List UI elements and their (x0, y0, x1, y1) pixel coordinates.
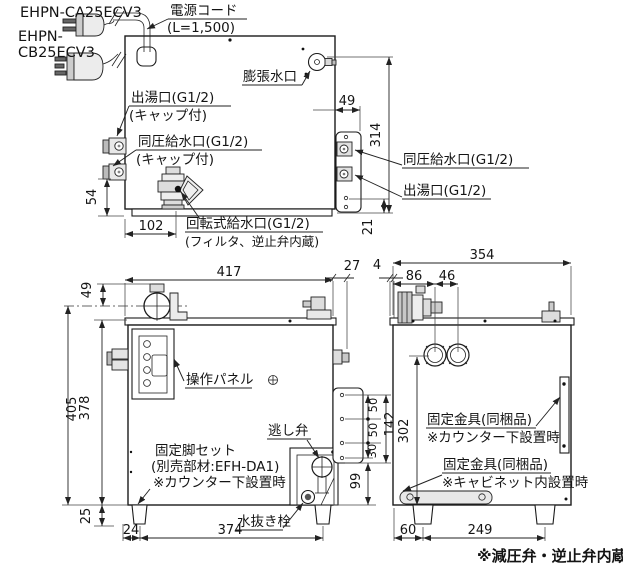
screw-dot (130, 451, 132, 453)
rear-outlet-port (337, 167, 352, 181)
label-control-panel: 操作パネル (186, 372, 254, 388)
label-bracket-counter-line2: ※カウンター下設置時 (427, 430, 560, 446)
front-foot-right (315, 505, 331, 524)
drain-plug (302, 491, 315, 504)
bracket-counter (560, 377, 569, 453)
label-fixing-leg-line3: ※カウンター下設置時 (153, 475, 286, 491)
dim-24: 24 (123, 523, 140, 538)
label-bracket-counter-line1: 固定金具(同梱品) (427, 412, 532, 428)
label-rear-outlet: 出湯口(G1/2) (403, 182, 486, 199)
rear-connection-plate (336, 132, 361, 212)
label-rear-ep-inlet: 同圧給水口(G1/2) (403, 152, 513, 168)
label-relief-valve: 逃し弁 (268, 423, 309, 439)
label-rotary-inlet: 回転式給水口(G1/2) (186, 216, 310, 232)
model-name-a: EHPN-CA25ECV3 (20, 5, 142, 21)
dim-50b: 50 (366, 423, 380, 438)
relief-valve-compartment (290, 448, 338, 505)
dim-302: 302 (397, 419, 412, 444)
side-foot-right (535, 505, 555, 524)
bracket-cabinet (400, 491, 492, 504)
screw-dot (130, 471, 132, 473)
dim-25: 25 (79, 508, 94, 525)
screw-dot (228, 38, 231, 41)
drawing-svg: 49 314 21 54 102 EHPN-CA25ECV3 EHPN- CB2… (0, 0, 623, 570)
dim-378: 378 (78, 396, 93, 421)
label-power-cord-length: (L=1,500) (167, 20, 235, 36)
dim-49-top: 49 (339, 94, 356, 109)
label-fixing-leg-line1: 固定脚セット (155, 443, 236, 459)
unit-top-front-strip (132, 209, 332, 216)
dim-54: 54 (85, 189, 100, 206)
dim-46: 46 (439, 269, 456, 284)
outlet-port-top (103, 138, 126, 154)
label-ep-inlet-cap: (キャップ付) (136, 152, 214, 168)
equal-pressure-port-top (103, 164, 126, 180)
dim-86: 86 (406, 269, 423, 284)
dim-417: 417 (217, 265, 242, 280)
model-name-b-line1: EHPN- (18, 29, 63, 45)
dim-50a: 50 (366, 398, 380, 413)
footnote-valves-builtin: ※減圧弁・逆止弁内蔵 (477, 547, 623, 565)
label-outlet-cap: (キャップ付) (129, 108, 207, 124)
screw-dot (302, 48, 305, 51)
screw-dot (565, 498, 568, 501)
technical-drawing-page: 49 314 21 54 102 EHPN-CA25ECV3 EHPN- CB2… (0, 0, 623, 570)
dim-99: 99 (349, 473, 364, 490)
label-expansion-port: 膨張水口 (243, 69, 297, 85)
dim-49-front: 49 (80, 282, 95, 299)
screw-dot (305, 73, 308, 76)
dim-27: 27 (344, 259, 361, 274)
model-name-b-line2: CB25ECV3 (18, 45, 95, 61)
label-power-cord: 電源コード (170, 3, 238, 19)
dim-354: 354 (470, 248, 495, 263)
dim-314: 314 (369, 123, 384, 148)
dim-249: 249 (468, 523, 493, 538)
control-panel (132, 329, 174, 399)
face-screw (269, 376, 278, 385)
dim-30: 30 (365, 444, 379, 459)
label-fixing-leg-line2: (別売部材:EFH-DA1) (151, 459, 279, 475)
label-ep-inlet: 同圧給水口(G1/2) (138, 134, 248, 150)
dim-60: 60 (400, 523, 417, 538)
dim-102: 102 (139, 219, 164, 234)
screw-dot (289, 320, 292, 323)
label-rotary-inlet-note: (フィルタ、逆止弁内蔵) (185, 234, 319, 249)
label-outlet: 出湯口(G1/2) (131, 89, 214, 106)
side-foot-left (413, 505, 433, 524)
label-bracket-cabinet-line2: ※キャビネット内設置時 (442, 475, 589, 491)
rear-ep-inlet-port (337, 142, 352, 156)
dim-4: 4 (373, 258, 381, 273)
front-foot-left (132, 505, 147, 524)
label-bracket-cabinet-line1: 固定金具(同梱品) (443, 457, 548, 473)
dim-21: 21 (361, 219, 376, 236)
screw-dot (412, 320, 415, 323)
screw-dot (484, 320, 487, 323)
screw-dot (554, 320, 557, 323)
